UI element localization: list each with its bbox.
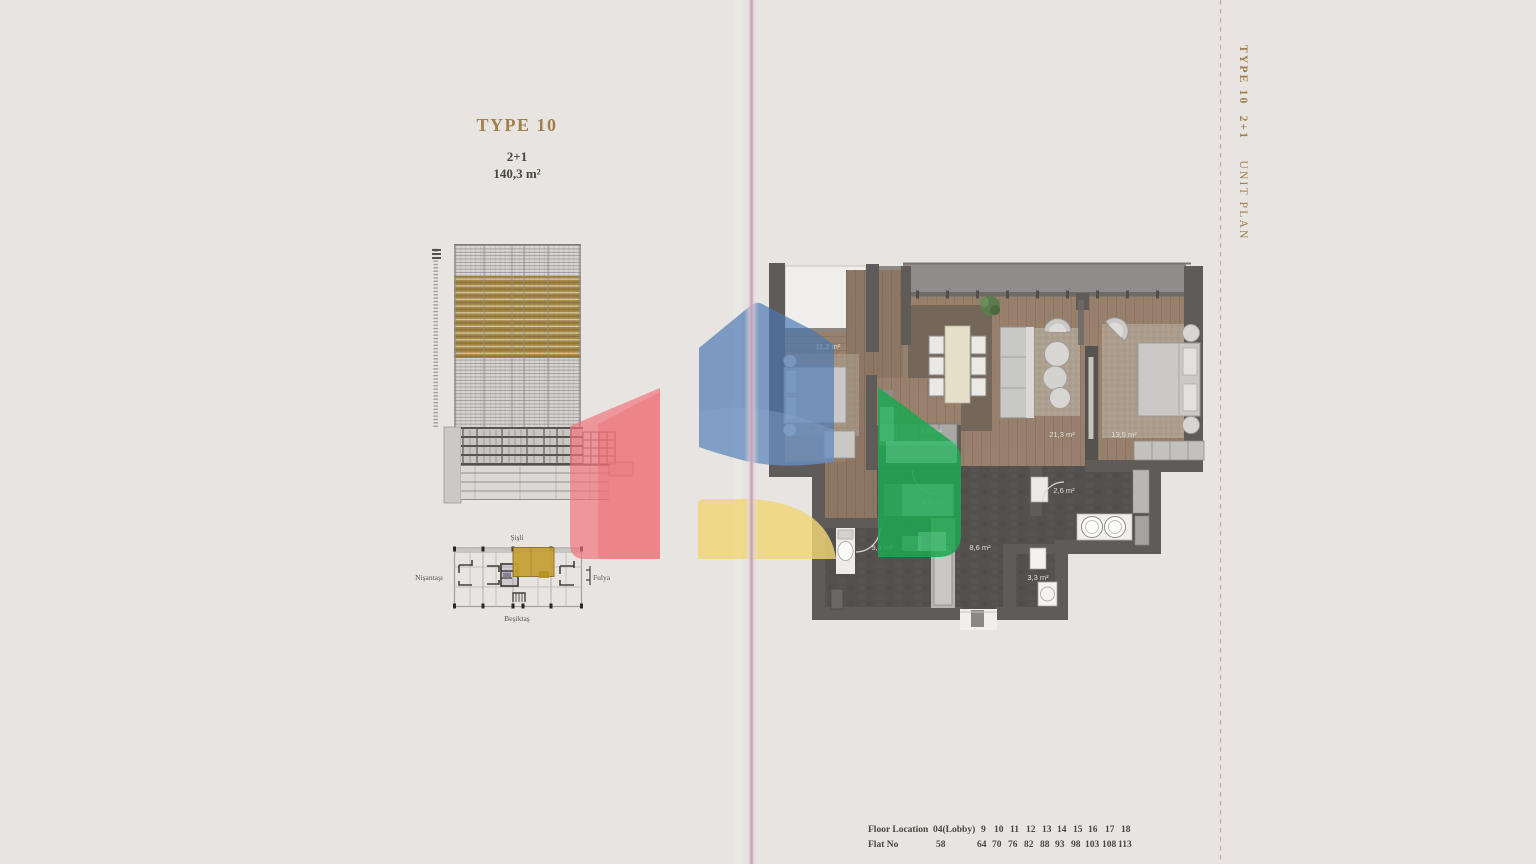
svg-text:Floor Location: Floor Location <box>868 825 929 835</box>
svg-text:64707682889398103108113: 64707682889398103108113 <box>977 840 1132 850</box>
svg-text:Flat No: Flat No <box>868 840 899 850</box>
svg-text:3,3 m²: 3,3 m² <box>1027 573 1049 582</box>
svg-text:140,3 m²: 140,3 m² <box>493 166 540 181</box>
svg-text:58: 58 <box>936 840 946 850</box>
svg-text:13,5 m²: 13,5 m² <box>1111 430 1137 439</box>
svg-text:Şişli: Şişli <box>510 533 523 542</box>
svg-text:TYPE 10: TYPE 10 <box>476 115 557 135</box>
svg-text:2,6 m²: 2,6 m² <box>1053 486 1075 495</box>
svg-text:21,3 m²: 21,3 m² <box>1049 430 1075 439</box>
svg-text:TYPE 10 2+1 UNIT PLAN: TYPE 10 2+1 UNIT PLAN <box>1237 45 1249 241</box>
svg-text:Fulya: Fulya <box>593 573 611 582</box>
svg-text:Beşiktaş: Beşiktaş <box>504 614 529 623</box>
svg-text:04(Lobby): 04(Lobby) <box>933 824 975 835</box>
svg-text:Nişantaşı: Nişantaşı <box>415 573 443 582</box>
svg-text:2+1: 2+1 <box>507 149 527 164</box>
svg-text:8,6 m²: 8,6 m² <box>969 543 991 552</box>
